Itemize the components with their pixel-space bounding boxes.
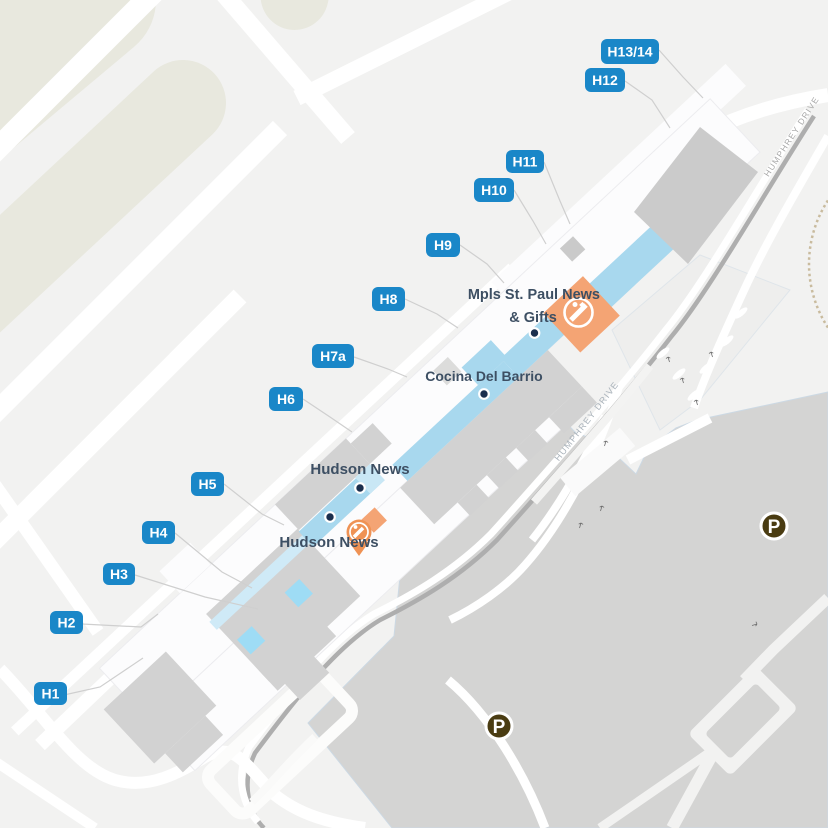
- svg-text:H10: H10: [481, 182, 507, 198]
- svg-text:H5: H5: [199, 476, 217, 492]
- svg-text:H8: H8: [380, 291, 398, 307]
- svg-text:Cocina Del Barrio: Cocina Del Barrio: [425, 368, 542, 384]
- svg-text:P: P: [493, 717, 506, 738]
- svg-text:H2: H2: [58, 615, 76, 631]
- svg-text:Mpls St. Paul News: Mpls St. Paul News: [468, 287, 600, 303]
- svg-text:Hudson News: Hudson News: [279, 534, 378, 551]
- svg-text:H6: H6: [277, 391, 295, 407]
- svg-text:H12: H12: [592, 72, 618, 88]
- svg-text:H3: H3: [110, 566, 128, 582]
- svg-text:H9: H9: [434, 237, 452, 253]
- svg-text:P: P: [768, 517, 781, 538]
- svg-text:H1: H1: [42, 686, 60, 702]
- svg-text:H11: H11: [513, 154, 538, 170]
- svg-text:H7a: H7a: [320, 348, 346, 364]
- svg-text:H13/14: H13/14: [607, 44, 652, 60]
- svg-text:Hudson News: Hudson News: [310, 461, 409, 478]
- svg-text:& Gifts: & Gifts: [509, 310, 557, 326]
- svg-text:H4: H4: [150, 525, 168, 541]
